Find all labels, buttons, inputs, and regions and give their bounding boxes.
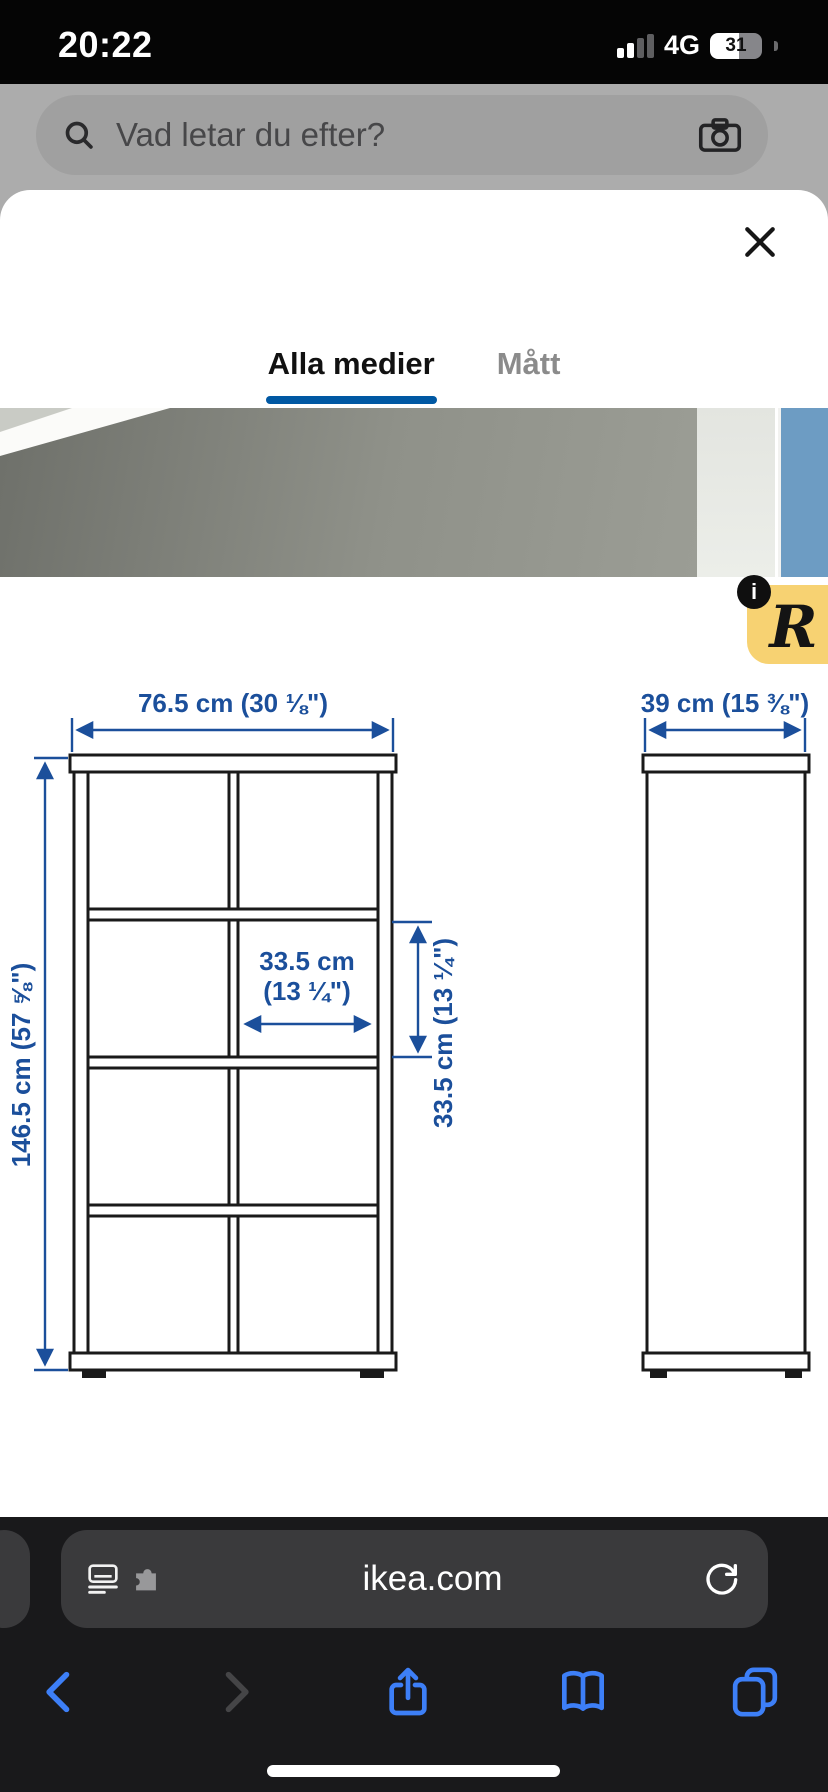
info-button[interactable]: i	[737, 575, 771, 609]
address-bar[interactable]: ikea.com	[61, 1530, 768, 1628]
cell-width-label-inch: (13 ¼")	[263, 976, 350, 1006]
share-button[interactable]	[368, 1652, 448, 1732]
clock: 20:22	[58, 24, 153, 66]
reload-button[interactable]	[702, 1559, 742, 1599]
close-button[interactable]	[732, 214, 788, 270]
front-height-label: 146.5 cm (57 ⅝")	[6, 963, 36, 1168]
forward-button[interactable]	[195, 1652, 275, 1732]
dimension-diagram: 76.5 cm (30 ⅛") 39 cm (15 ⅜") 146.5 cm (…	[0, 600, 828, 1400]
home-indicator[interactable]	[267, 1765, 560, 1777]
battery-nub-icon	[774, 41, 778, 51]
info-icon: i	[751, 579, 757, 605]
front-width-label: 76.5 cm (30 ⅛")	[138, 688, 328, 718]
signal-strength-icon	[617, 34, 654, 58]
media-carousel[interactable]	[0, 408, 828, 577]
side-depth-label: 39 cm (15 ⅜")	[641, 688, 809, 718]
status-indicators: 4G 31	[617, 30, 778, 61]
url-text: ikea.com	[163, 1559, 702, 1599]
tabs-overview-icon	[727, 1664, 783, 1720]
back-button[interactable]	[20, 1652, 100, 1732]
dimmed-page-background	[0, 84, 828, 190]
tab-matt[interactable]: Mått	[495, 340, 563, 404]
search-icon	[62, 118, 96, 152]
cell-width-label-cm: 33.5 cm	[259, 946, 354, 976]
network-type: 4G	[664, 30, 700, 61]
battery-icon: 31	[710, 33, 762, 59]
iphone-screen: 20:22 4G 31	[0, 0, 828, 1792]
reader-icon[interactable]	[87, 1563, 119, 1595]
cell-height-label: 33.5 cm (13 ¼")	[428, 938, 458, 1128]
tab-switcher-button[interactable]	[715, 1652, 795, 1732]
previous-tab-edge[interactable]	[0, 1530, 30, 1628]
close-icon	[742, 224, 778, 260]
battery-percent: 31	[710, 33, 762, 59]
back-chevron-icon	[34, 1666, 86, 1718]
book-icon	[555, 1664, 611, 1720]
status-bar: 20:22 4G 31	[0, 0, 828, 84]
carousel-photo-edge	[697, 408, 775, 577]
forward-chevron-icon	[209, 1666, 261, 1718]
bookmarks-button[interactable]	[543, 1652, 623, 1732]
partner-r-logo: R	[769, 593, 817, 661]
camera-button[interactable]	[698, 117, 742, 153]
browser-toolbar: ikea.com	[0, 1517, 828, 1792]
search-bar[interactable]	[36, 95, 768, 175]
active-tab-underline	[266, 396, 437, 404]
search-input[interactable]	[116, 116, 698, 154]
share-icon	[380, 1664, 436, 1720]
carousel-photo-next[interactable]	[778, 408, 828, 577]
media-tabs: Alla medier Mått	[0, 340, 828, 404]
carousel-photo-current[interactable]	[0, 408, 697, 577]
extension-puzzle-icon[interactable]	[129, 1562, 163, 1596]
tab-alla-medier[interactable]: Alla medier	[266, 340, 437, 404]
